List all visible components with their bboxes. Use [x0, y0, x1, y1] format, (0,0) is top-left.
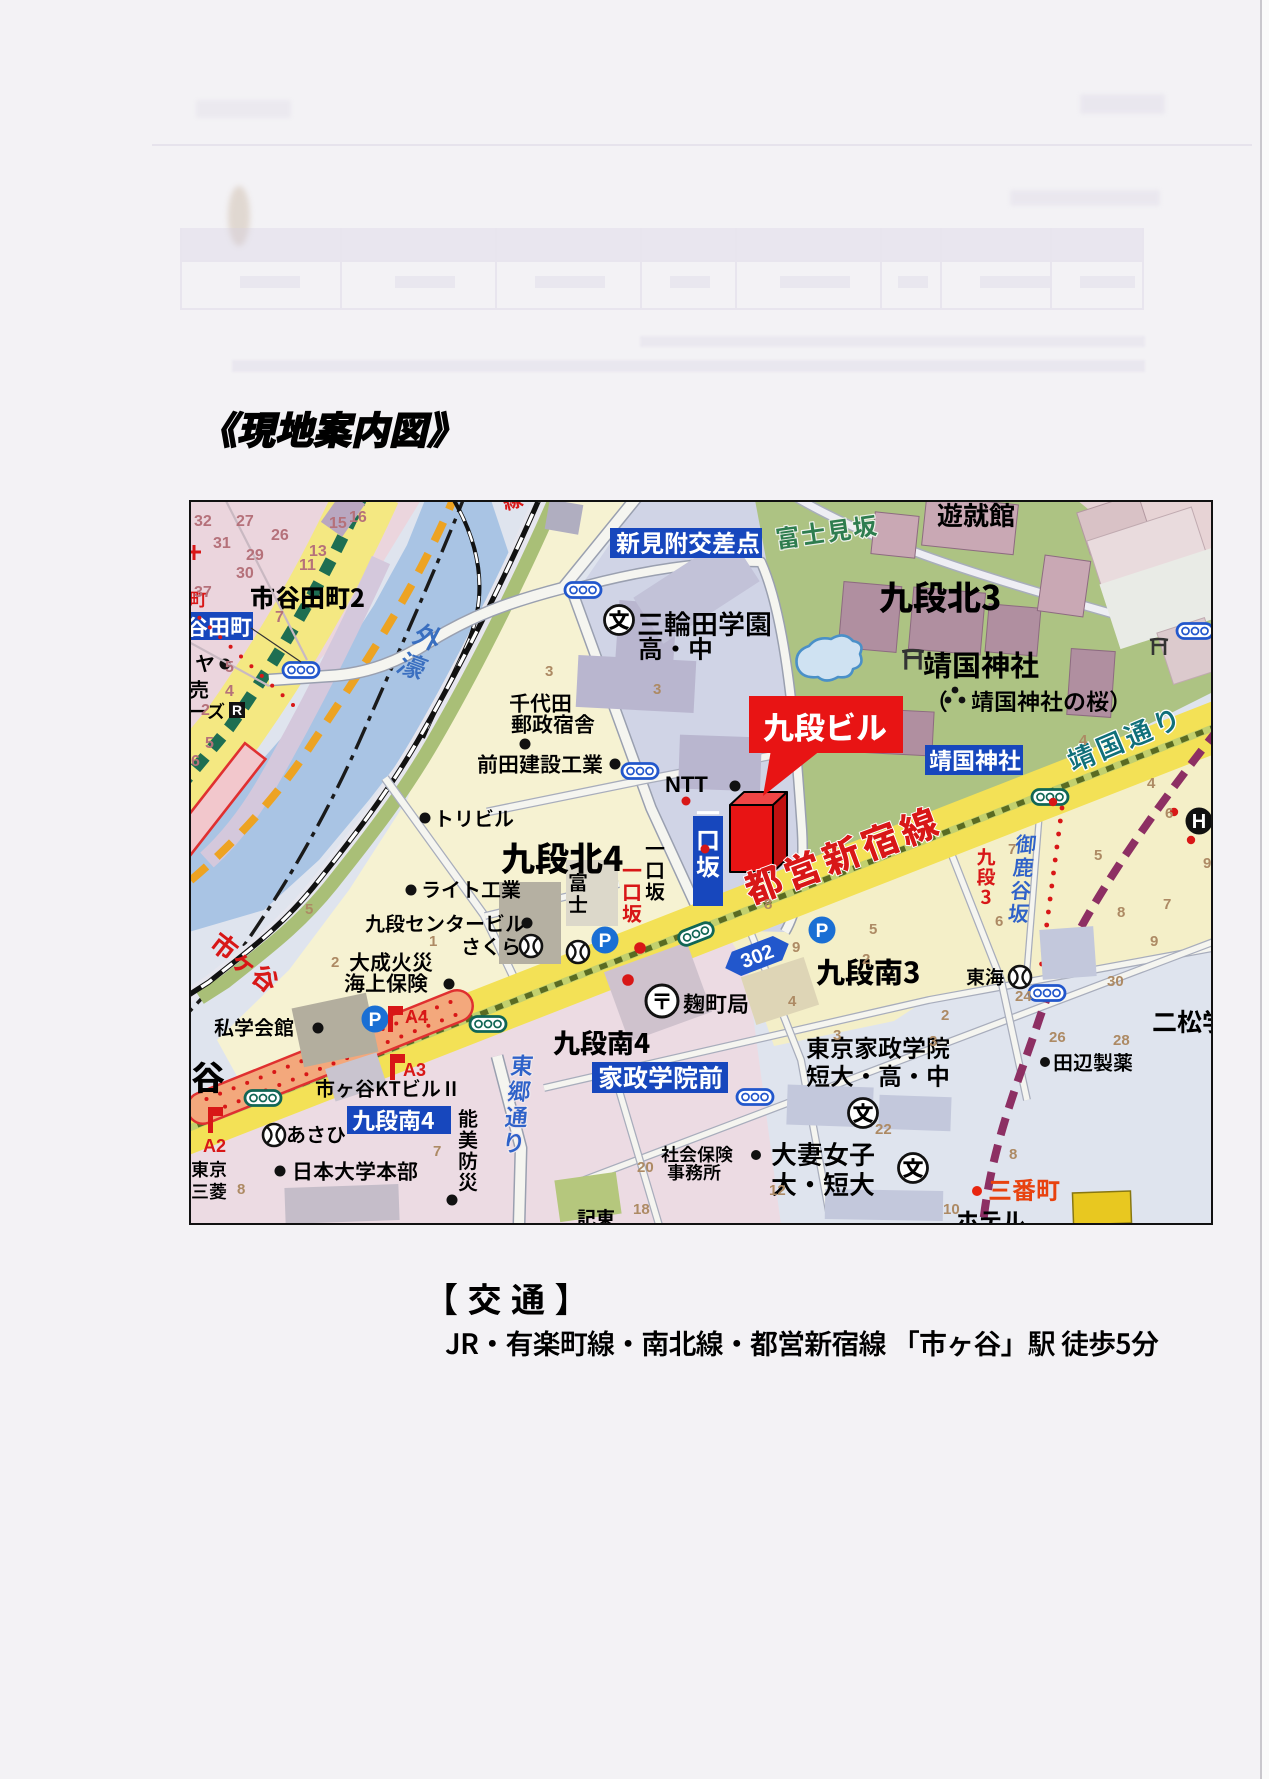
svg-text:31: 31 [213, 535, 231, 552]
svg-text:9: 9 [792, 939, 800, 956]
svg-text:22: 22 [875, 1121, 892, 1138]
svg-text:7: 7 [433, 1143, 441, 1160]
svg-text:5: 5 [205, 735, 214, 752]
svg-text:6: 6 [995, 913, 1003, 930]
svg-text:6: 6 [1165, 805, 1173, 822]
svg-text:A3: A3 [403, 1060, 426, 1080]
svg-text:4: 4 [225, 683, 234, 700]
svg-text:P: P [599, 931, 612, 952]
svg-text:3: 3 [833, 1027, 841, 1044]
svg-text:8: 8 [1009, 1146, 1017, 1163]
svg-text:3: 3 [929, 1033, 937, 1050]
svg-text:R: R [232, 702, 242, 718]
svg-text:9: 9 [1203, 855, 1211, 872]
svg-text:2: 2 [862, 951, 870, 968]
svg-text:5: 5 [869, 921, 877, 938]
svg-text:NTT: NTT [665, 772, 708, 797]
svg-text:9: 9 [1150, 933, 1158, 950]
svg-text:7: 7 [1008, 841, 1016, 858]
svg-text:20: 20 [637, 1159, 654, 1176]
svg-text:8: 8 [1117, 904, 1125, 921]
svg-text:12: 12 [769, 1182, 786, 1199]
svg-text:P: P [816, 921, 829, 942]
svg-text:3: 3 [653, 681, 661, 698]
svg-text:7: 7 [275, 609, 284, 626]
svg-text:5: 5 [225, 659, 234, 676]
svg-text:16: 16 [349, 509, 367, 526]
svg-text:32: 32 [194, 513, 212, 530]
svg-text:3: 3 [545, 663, 553, 680]
svg-text:2: 2 [941, 1007, 949, 1024]
svg-text:28: 28 [1113, 1032, 1130, 1049]
svg-text:7: 7 [1163, 896, 1171, 913]
svg-text:P: P [369, 1010, 382, 1031]
svg-text:2: 2 [331, 954, 339, 971]
svg-text:18: 18 [633, 1201, 650, 1218]
svg-text:27: 27 [236, 513, 254, 530]
svg-text:8: 8 [764, 896, 772, 913]
svg-text:4: 4 [788, 993, 797, 1010]
svg-text:4: 4 [1079, 732, 1088, 749]
svg-text:26: 26 [1049, 1029, 1066, 1046]
svg-text:H: H [1192, 811, 1206, 833]
svg-text:A2: A2 [203, 1136, 226, 1156]
svg-text:30: 30 [1107, 973, 1124, 990]
svg-text:5: 5 [1094, 847, 1102, 864]
svg-text:2: 2 [201, 702, 210, 719]
svg-text:4: 4 [1147, 775, 1156, 792]
svg-text:26: 26 [271, 527, 289, 544]
svg-text:5: 5 [305, 901, 313, 918]
svg-text:8: 8 [237, 1181, 245, 1198]
svg-text:30: 30 [236, 565, 254, 582]
svg-text:A4: A4 [405, 1007, 428, 1027]
svg-text:24: 24 [1015, 988, 1032, 1005]
svg-text:29: 29 [246, 547, 264, 564]
svg-text:37: 37 [194, 584, 212, 601]
svg-text:10: 10 [943, 1201, 960, 1218]
svg-text:1: 1 [429, 933, 437, 950]
svg-text:15: 15 [329, 515, 347, 532]
svg-text:6: 6 [191, 753, 200, 770]
svg-text:11: 11 [299, 557, 316, 574]
